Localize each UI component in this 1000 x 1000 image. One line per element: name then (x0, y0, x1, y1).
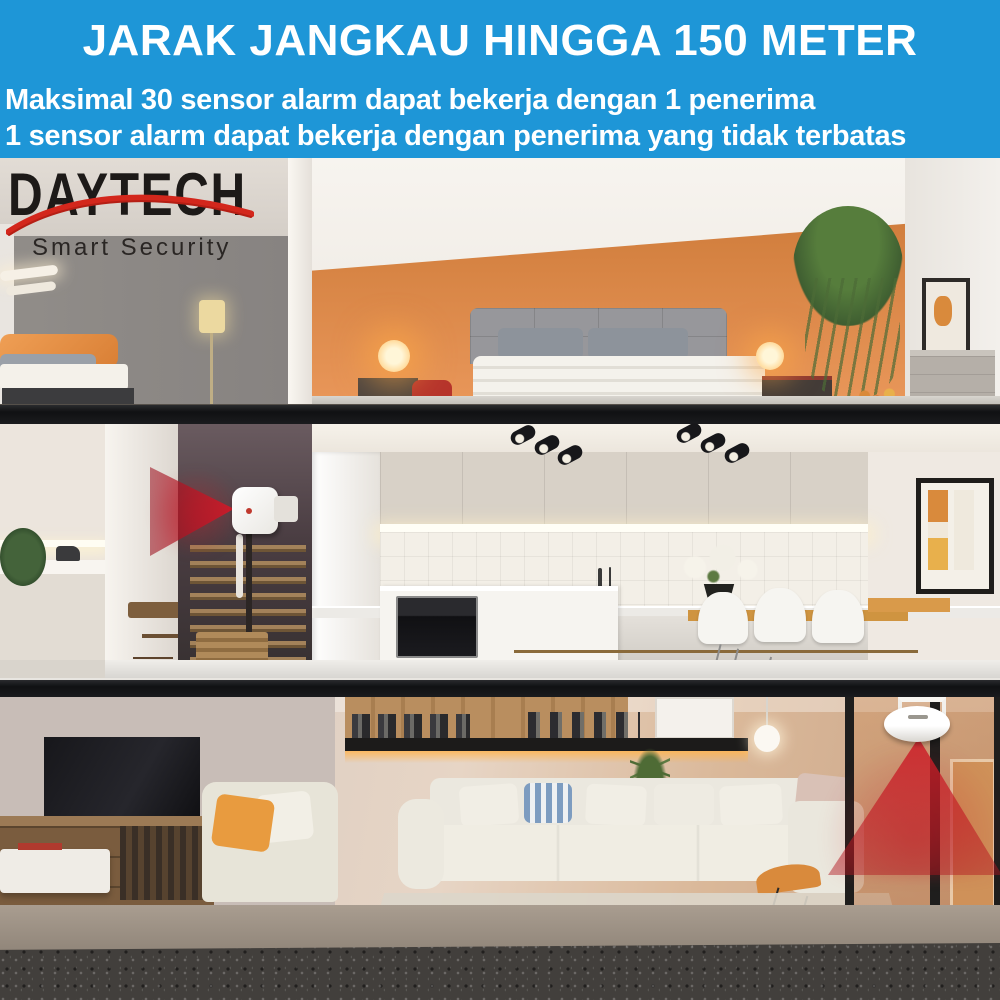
wall-motion-sensor (232, 487, 278, 534)
sofa-pillow (719, 783, 783, 826)
promo-image: DAYTECH Smart Security JARAK JANGKAU HIN… (0, 0, 1000, 1000)
floor-lamp-shade (199, 300, 225, 333)
kitchenette-floor (0, 660, 105, 680)
banner-subtitle-2: 1 sensor alarm dapat bekerja dengan pene… (5, 120, 906, 153)
shelf-books (352, 714, 470, 738)
wall-picture-art (934, 296, 952, 326)
kitchen-picture-art (928, 490, 948, 570)
shelf-underglow (345, 751, 748, 763)
daytech-logo: DAYTECH Smart Security (8, 160, 258, 270)
ceiling-motion-sensor (884, 706, 950, 742)
kitchenette-plant (0, 528, 46, 586)
middle-floor (0, 424, 1000, 680)
dining-chair (812, 590, 864, 643)
bed-pillow-right (588, 328, 688, 359)
floor-slab-lower (0, 678, 1000, 699)
sofa-pillow-blue (524, 783, 572, 823)
banner-subtitle-1: Maksimal 30 sensor alarm dapat bekerja d… (5, 84, 815, 117)
pendant-cord (766, 697, 768, 727)
wall-ledge (868, 598, 950, 612)
sofa-pillow (585, 783, 647, 826)
carpet (0, 943, 1000, 1000)
bedside-lamp-left (378, 340, 410, 372)
floor-lamp-pole (210, 333, 213, 405)
bed-pillow-left (498, 328, 583, 359)
built-in-oven (396, 596, 478, 658)
left-bed-base (2, 388, 134, 404)
logo-swoosh-icon (6, 186, 254, 238)
floor-slab-upper (0, 404, 1000, 425)
console-slats (120, 826, 214, 900)
banner-title: JARAK JANGKAU HINGGA 150 METER (0, 16, 1000, 66)
floating-shelf (345, 738, 748, 751)
dining-chair (698, 592, 748, 644)
bedside-lamp-right (756, 342, 784, 370)
hanging-plant-vines (805, 278, 900, 398)
dining-chair (754, 588, 806, 642)
flower-bouquet (672, 542, 764, 588)
tv-screen (44, 737, 200, 819)
logo-tagline: Smart Security (32, 234, 231, 262)
armchair-pillow-orange (211, 793, 276, 853)
sofa-pillow (459, 783, 520, 827)
middle-floor-floorline (105, 660, 1000, 680)
kettle (56, 546, 80, 561)
tall-cabinet (312, 452, 380, 674)
sofa-arm-left (398, 799, 444, 889)
wall-sensor-led (246, 508, 252, 514)
sofa-pillow (654, 784, 714, 825)
kitchenette-cabinet (0, 574, 105, 660)
ground-floor (0, 697, 1000, 1000)
pendant-lamp (754, 725, 780, 752)
red-book (18, 843, 62, 850)
wooden-chair (128, 602, 182, 618)
wall-sensor-bracket (274, 496, 298, 522)
ceiling-sensor-slot (908, 715, 928, 719)
wall-canvas (655, 697, 734, 739)
undercabinet-light (380, 524, 868, 532)
wall-column (288, 158, 314, 406)
upper-cabinets (380, 452, 868, 528)
shelf-books (528, 712, 640, 738)
coffee-table (0, 849, 110, 893)
left-bed-sheet (0, 364, 128, 390)
banner: JARAK JANGKAU HINGGA 150 METER Maksimal … (0, 0, 1000, 158)
